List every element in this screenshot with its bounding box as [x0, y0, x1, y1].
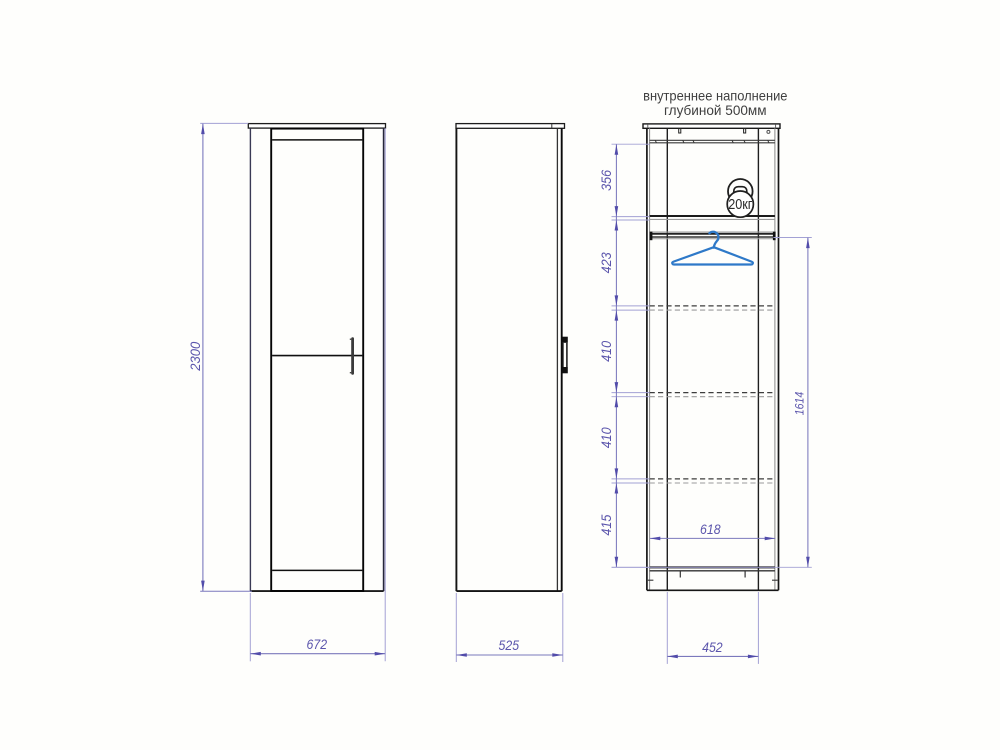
svg-text:1614: 1614 — [793, 391, 807, 415]
svg-text:глубиной 500мм: глубиной 500мм — [664, 103, 767, 118]
svg-text:410: 410 — [599, 427, 614, 448]
svg-text:410: 410 — [599, 340, 614, 361]
svg-text:415: 415 — [599, 514, 614, 535]
svg-text:525: 525 — [499, 638, 520, 653]
svg-text:452: 452 — [702, 640, 723, 655]
svg-text:20кг: 20кг — [728, 196, 753, 213]
svg-text:внутреннее наполнение: внутреннее наполнение — [643, 88, 787, 103]
svg-text:423: 423 — [599, 252, 614, 273]
svg-text:618: 618 — [700, 522, 721, 537]
svg-text:672: 672 — [307, 637, 328, 652]
svg-text:356: 356 — [599, 169, 614, 190]
svg-text:2300: 2300 — [188, 341, 203, 371]
